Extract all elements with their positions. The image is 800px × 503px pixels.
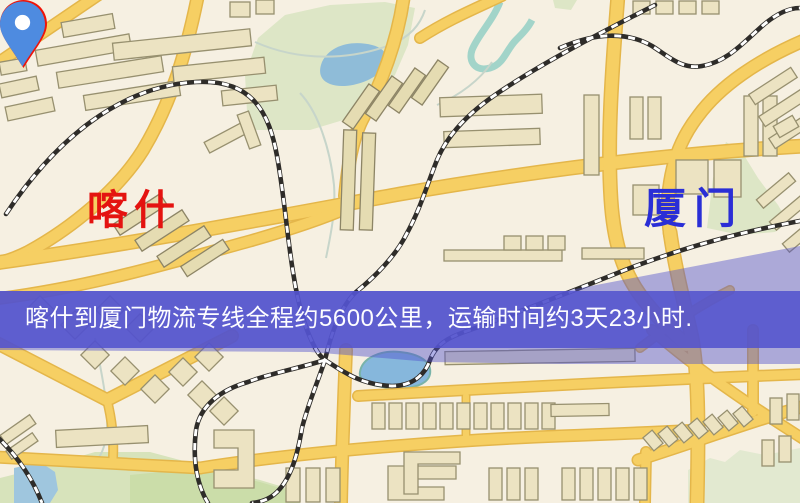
destination-pin-icon xyxy=(0,0,45,68)
destination-label: 厦门 xyxy=(644,175,744,236)
map-graphic xyxy=(0,0,800,503)
route-info-text: 喀什到厦门物流专线全程约5600公里，运输时间约3天23小时. xyxy=(25,303,795,335)
logistics-route-map: 喀什到厦门物流专线全程约5600公里，运输时间约3天23小时. 喀什 厦门 xyxy=(0,0,800,503)
origin-label: 喀什 xyxy=(87,176,181,236)
